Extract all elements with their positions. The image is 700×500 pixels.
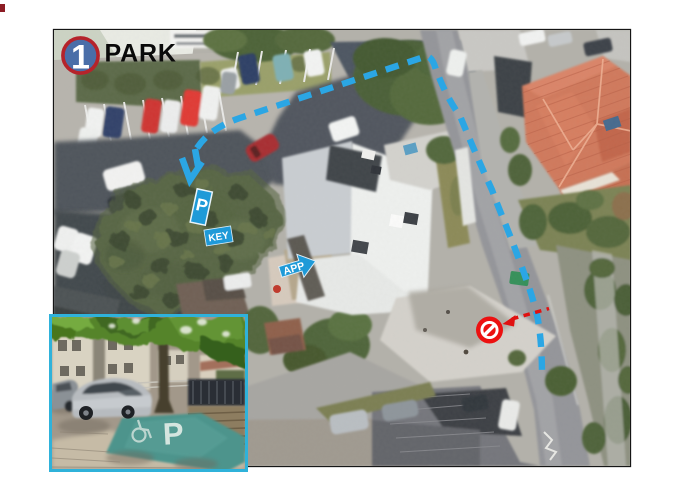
svg-text:PARK: PARK <box>105 40 177 68</box>
svg-text:P: P <box>162 416 184 452</box>
svg-text:1: 1 <box>71 39 90 77</box>
